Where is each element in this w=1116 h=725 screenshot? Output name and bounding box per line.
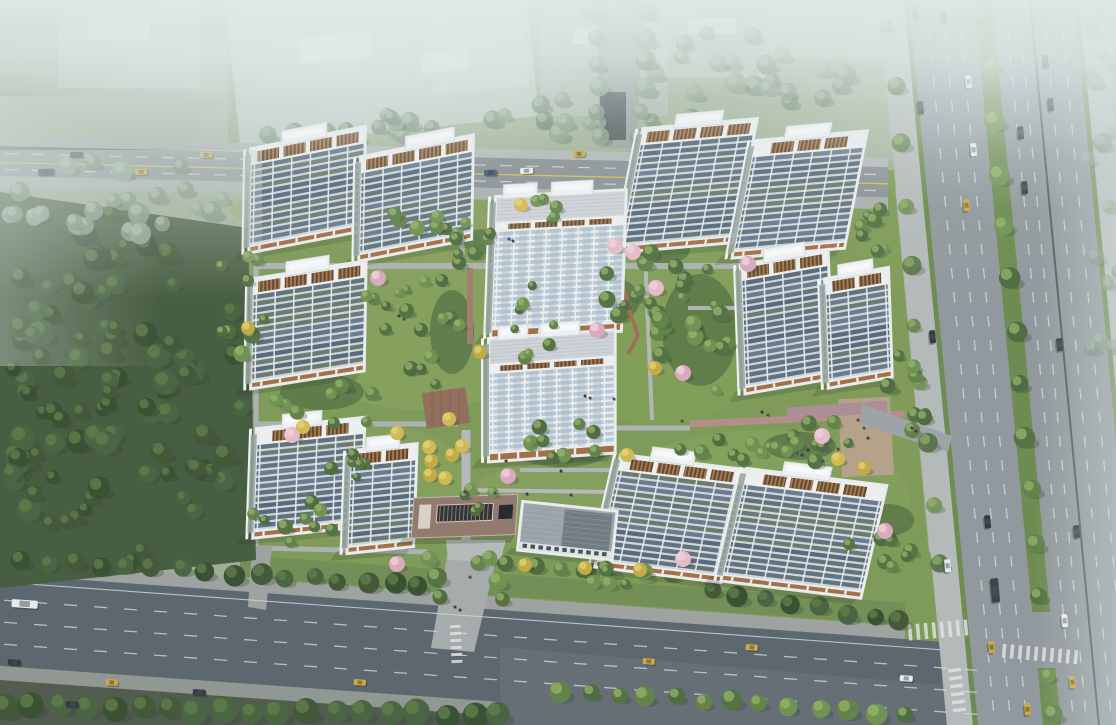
layer-fog (0, 0, 1116, 725)
architectural-rendering (0, 0, 1116, 725)
scene-svg (0, 0, 1116, 725)
